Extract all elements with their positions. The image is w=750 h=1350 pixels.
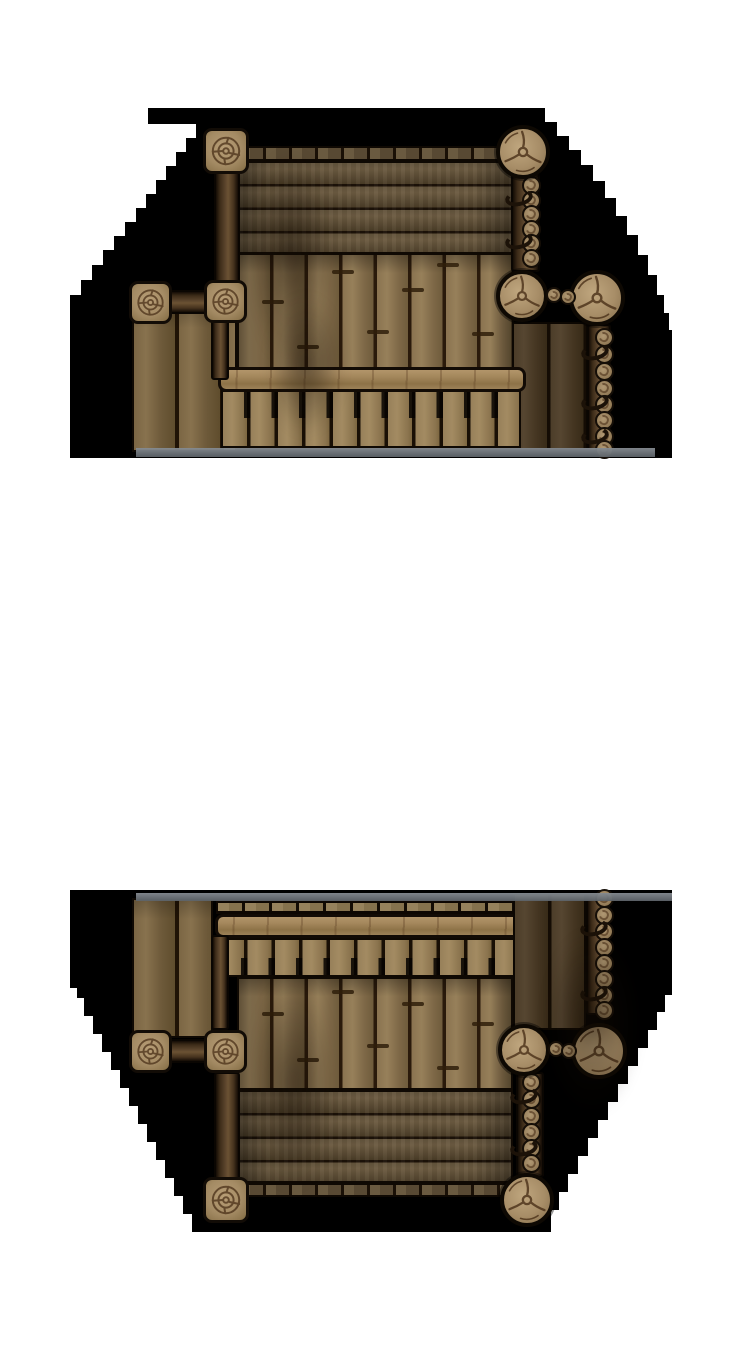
deck-side-planks xyxy=(132,898,213,1038)
water-edge-strip xyxy=(136,448,655,457)
plank-joint xyxy=(402,288,424,292)
plank-joint xyxy=(332,990,354,994)
wooden-post-cap xyxy=(203,1177,249,1223)
deck-narrow-planks xyxy=(218,938,522,977)
plank-joint xyxy=(437,263,459,267)
log-piling xyxy=(569,270,625,326)
wooden-post-cap xyxy=(204,280,247,323)
support-beam xyxy=(211,320,229,380)
battle-map[interactable] xyxy=(0,0,750,1350)
log-bundle xyxy=(522,1154,541,1173)
plank-joint xyxy=(437,1066,459,1070)
cross-beam xyxy=(215,914,525,938)
log-piling xyxy=(498,1024,550,1076)
log-piling xyxy=(500,1173,554,1227)
support-beam xyxy=(214,1072,240,1180)
wooden-post-cap xyxy=(203,128,249,174)
plank-joint xyxy=(332,270,354,274)
cross-beam xyxy=(218,367,526,392)
shadow-smudge xyxy=(545,930,640,1115)
wooden-post-cap xyxy=(129,281,172,324)
plank-joint xyxy=(472,332,494,336)
water-edge-strip xyxy=(136,893,672,901)
log-piling xyxy=(496,270,548,322)
log-bundle xyxy=(522,249,541,268)
plank-joint xyxy=(367,330,389,334)
shadow-smudge xyxy=(250,975,335,1190)
support-beam xyxy=(211,935,229,1030)
log-end xyxy=(560,289,576,305)
plank-ends-strip xyxy=(216,901,524,914)
wooden-post-cap xyxy=(204,1030,247,1073)
deck-narrow-planks xyxy=(221,390,521,448)
plank-joint xyxy=(367,1044,389,1048)
plank-joint xyxy=(402,1002,424,1006)
plank-joint xyxy=(472,1022,494,1026)
log-bundle xyxy=(595,362,614,381)
wooden-post-cap xyxy=(129,1030,172,1073)
shadow-smudge xyxy=(268,295,343,435)
log-piling xyxy=(496,125,550,179)
